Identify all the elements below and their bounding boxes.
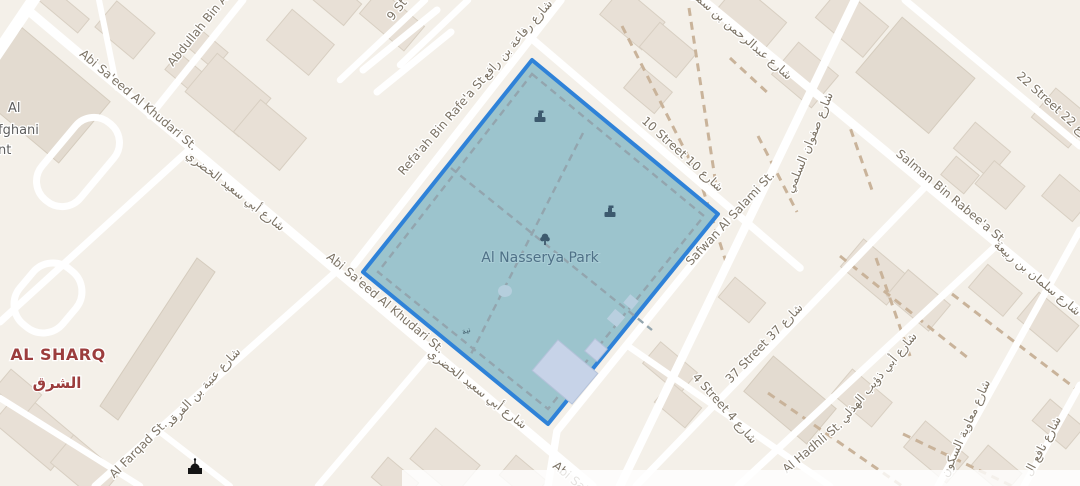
poi-label-fragment: fghani <box>0 123 39 138</box>
pond <box>498 285 512 297</box>
map-canvas[interactable]: Abdullah Bin Ab Abi Sa'eed Al Khudari St… <box>0 0 1080 486</box>
attribution-bar: Leaflet | Data by © OpenStreetMap, under… <box>402 470 1080 486</box>
map-container[interactable]: Abdullah Bin Ab Abi Sa'eed Al Khudari St… <box>0 0 1080 486</box>
park-name-label: Al Nasserya Park <box>481 250 599 266</box>
poi-label-fragment: nt <box>0 143 11 158</box>
district-label: AL SHARQ <box>10 345 105 364</box>
poi-label-fragment: Al <box>8 101 21 116</box>
district-label-arabic: الشرق <box>33 374 82 392</box>
